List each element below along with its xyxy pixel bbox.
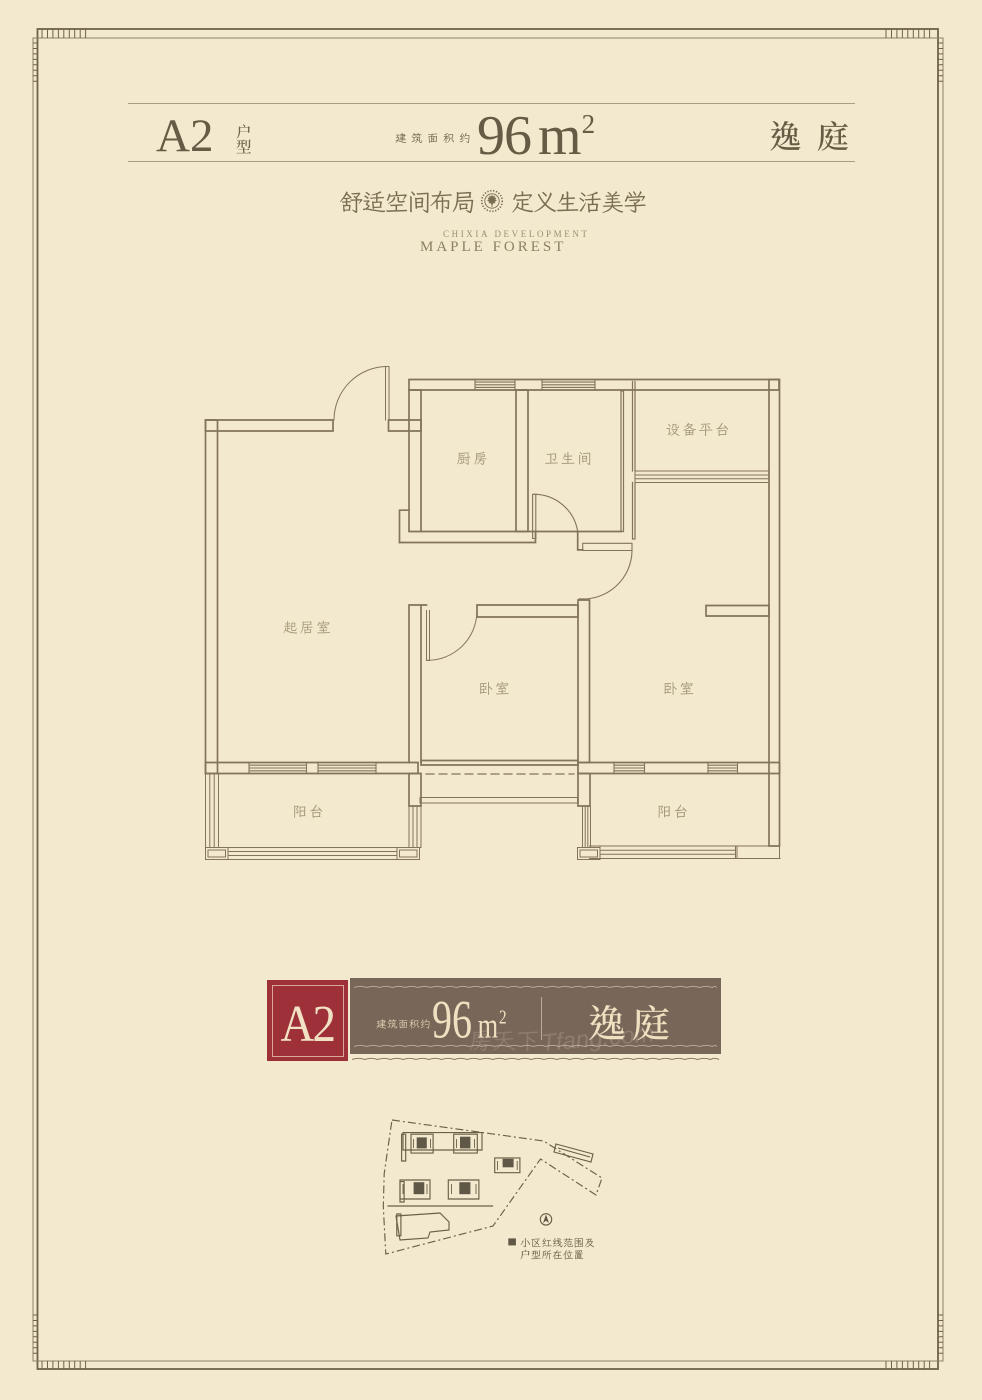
svg-text:Tfang.com: Tfang.com (540, 1020, 655, 1057)
